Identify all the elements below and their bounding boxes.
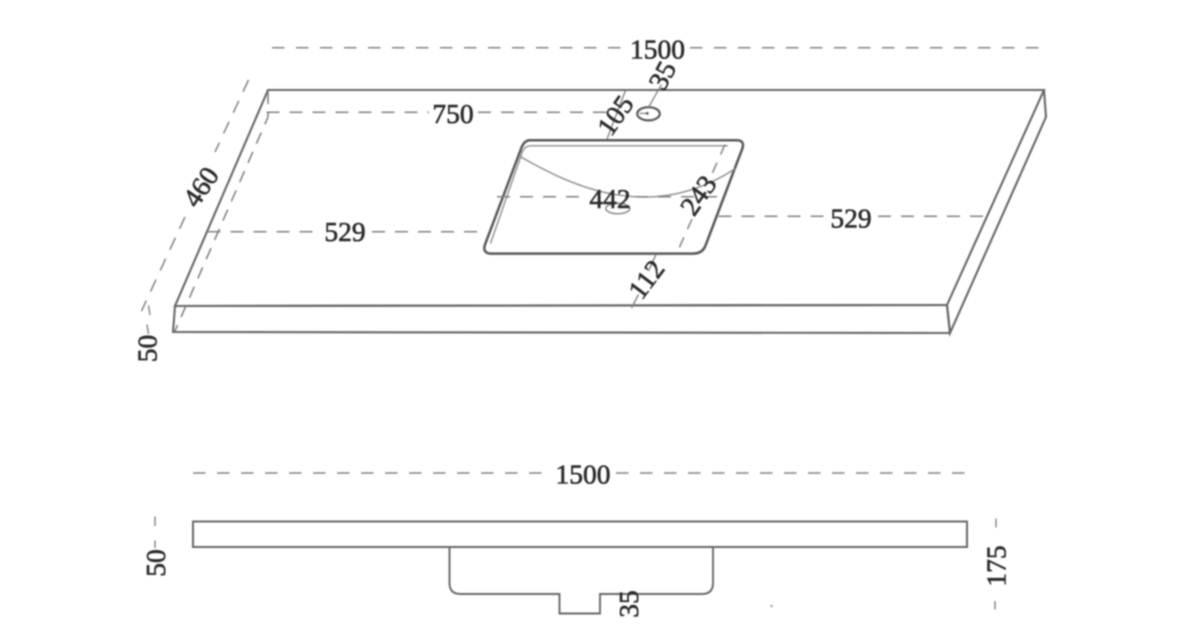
svg-text:529: 529: [830, 203, 871, 234]
svg-text:750: 750: [432, 98, 473, 129]
svg-text:50: 50: [140, 549, 171, 577]
svg-text:35: 35: [613, 590, 644, 618]
svg-text:175: 175: [981, 545, 1012, 586]
svg-text:529: 529: [324, 216, 365, 247]
svg-text:442: 442: [589, 183, 630, 214]
svg-text:1500: 1500: [556, 459, 611, 490]
svg-text:50: 50: [132, 335, 163, 363]
